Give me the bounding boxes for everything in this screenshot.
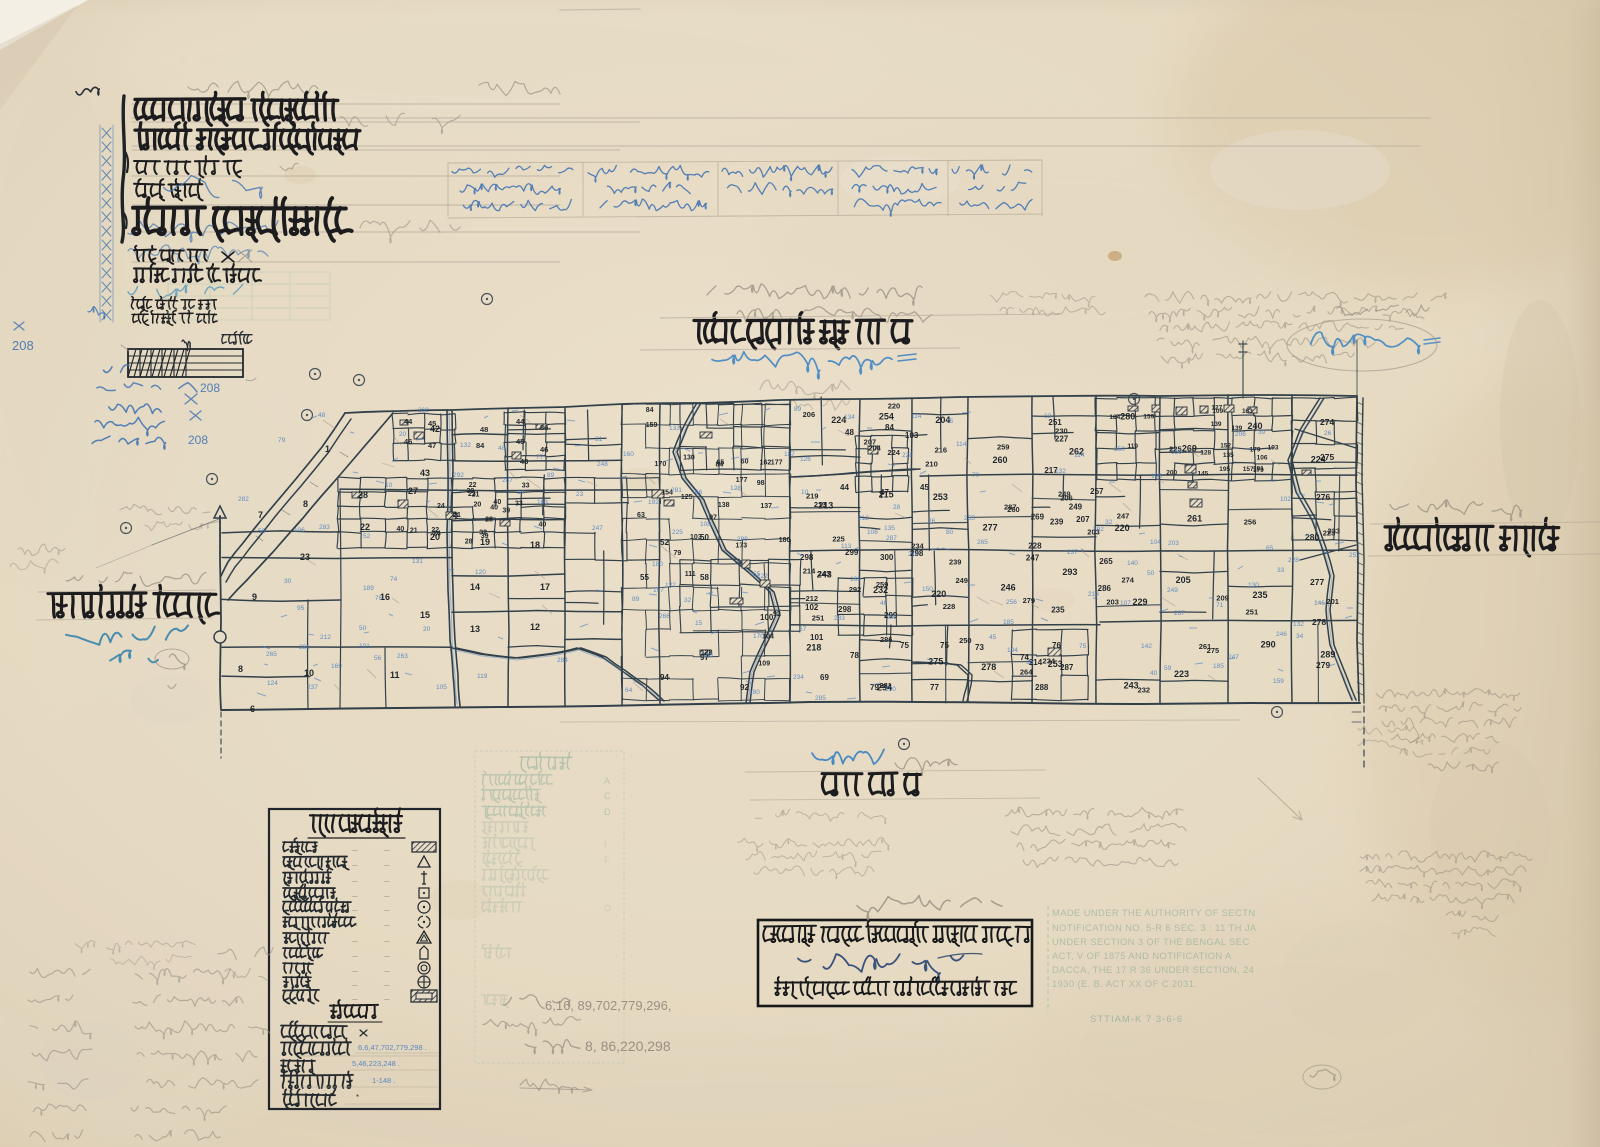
svg-text:292: 292 xyxy=(453,472,464,479)
svg-text:D: D xyxy=(604,807,611,817)
svg-text:229: 229 xyxy=(1132,597,1147,607)
svg-text:274: 274 xyxy=(1320,417,1334,427)
svg-text:103: 103 xyxy=(905,431,919,440)
svg-text:246: 246 xyxy=(1276,631,1287,638)
svg-text:235: 235 xyxy=(1051,606,1065,615)
svg-text:1930 (E. B. ACT XX OF C 2: 1930 (E. B. ACT XX OF C 2031. xyxy=(1052,978,1197,989)
svg-text:15: 15 xyxy=(420,610,430,620)
svg-text:89: 89 xyxy=(547,472,555,479)
svg-text:152: 152 xyxy=(886,614,897,621)
svg-text:215: 215 xyxy=(879,489,894,499)
svg-text:265: 265 xyxy=(1099,557,1113,566)
svg-text:278: 278 xyxy=(981,662,996,672)
svg-text:114: 114 xyxy=(911,413,922,420)
svg-text:11: 11 xyxy=(390,670,400,680)
svg-text:259: 259 xyxy=(997,442,1010,451)
svg-text:228: 228 xyxy=(902,452,913,459)
svg-text:59: 59 xyxy=(1164,665,1172,672)
svg-text:249: 249 xyxy=(1167,587,1178,594)
svg-text:20: 20 xyxy=(399,431,407,438)
svg-text:113: 113 xyxy=(841,543,852,550)
svg-text:21: 21 xyxy=(453,512,461,519)
svg-text:131: 131 xyxy=(412,558,423,565)
svg-text:...: ... xyxy=(352,861,358,868)
svg-text:...: ... xyxy=(384,921,390,928)
svg-text:249: 249 xyxy=(955,576,968,585)
svg-text:8: 8 xyxy=(238,664,243,674)
svg-text:286: 286 xyxy=(1098,584,1112,593)
svg-text:205: 205 xyxy=(1176,575,1191,585)
svg-text:289: 289 xyxy=(1320,650,1335,660)
svg-text:169: 169 xyxy=(850,576,861,583)
svg-text:203: 203 xyxy=(1168,540,1179,547)
svg-text:266: 266 xyxy=(659,613,670,620)
svg-text:...: ... xyxy=(384,861,390,868)
svg-text:190: 190 xyxy=(885,686,896,693)
svg-text:284: 284 xyxy=(557,657,568,664)
svg-text:33: 33 xyxy=(1277,567,1285,574)
svg-text:33: 33 xyxy=(515,501,523,508)
svg-text:102: 102 xyxy=(1280,496,1291,503)
svg-text:200: 200 xyxy=(1166,469,1177,476)
svg-text:280: 280 xyxy=(1120,412,1135,422)
svg-text:160: 160 xyxy=(623,451,634,458)
svg-text:247: 247 xyxy=(1026,554,1040,563)
svg-text:292: 292 xyxy=(849,585,862,594)
svg-text:17: 17 xyxy=(540,582,550,592)
svg-text:...: ... xyxy=(352,981,358,988)
svg-text:250: 250 xyxy=(1114,446,1125,453)
svg-text:195: 195 xyxy=(1151,473,1162,480)
svg-text:162: 162 xyxy=(760,459,772,466)
svg-text:89: 89 xyxy=(632,596,640,603)
svg-text:257: 257 xyxy=(1090,487,1104,496)
svg-text:102: 102 xyxy=(805,603,819,612)
svg-text:...: ... xyxy=(352,967,358,974)
svg-text:228: 228 xyxy=(943,602,956,611)
svg-text:...: ... xyxy=(384,877,390,884)
svg-text:96: 96 xyxy=(1026,659,1034,666)
svg-text:223: 223 xyxy=(1323,529,1336,538)
svg-text:56: 56 xyxy=(258,528,266,535)
svg-text:63: 63 xyxy=(637,512,645,519)
svg-text:45: 45 xyxy=(989,634,997,641)
svg-text:92: 92 xyxy=(773,611,781,618)
svg-text:247: 247 xyxy=(1117,511,1130,520)
svg-text:...: ... xyxy=(352,906,358,913)
svg-text:169: 169 xyxy=(331,663,342,670)
svg-text:132: 132 xyxy=(460,442,471,449)
svg-text:234: 234 xyxy=(911,542,924,551)
svg-text:298: 298 xyxy=(800,553,814,562)
svg-text:120: 120 xyxy=(475,569,486,576)
svg-text:14: 14 xyxy=(470,582,480,592)
svg-text:220: 220 xyxy=(888,401,901,410)
svg-text:223: 223 xyxy=(1174,669,1189,679)
svg-text:NOTIFICATION NO. 5-R 6 SEC.: NOTIFICATION NO. 5-R 6 SEC. 3 : 11 TH JA xyxy=(1052,922,1257,933)
svg-text:27: 27 xyxy=(408,486,418,496)
svg-text:48: 48 xyxy=(498,445,506,452)
svg-text:12: 12 xyxy=(530,622,540,632)
svg-text:288: 288 xyxy=(1035,683,1049,692)
svg-text:...: ... xyxy=(352,952,358,959)
svg-text:58: 58 xyxy=(700,573,709,582)
svg-text:109: 109 xyxy=(758,661,770,668)
svg-text:44: 44 xyxy=(404,417,413,426)
svg-text:293: 293 xyxy=(1062,567,1077,577)
svg-text:23: 23 xyxy=(576,491,584,498)
svg-text:114: 114 xyxy=(1074,452,1085,459)
svg-text:265: 265 xyxy=(266,651,277,658)
svg-text:274: 274 xyxy=(1121,575,1134,584)
svg-text:185: 185 xyxy=(1003,619,1014,626)
svg-text:212: 212 xyxy=(320,634,331,641)
svg-text:286: 286 xyxy=(299,644,310,651)
svg-text:212: 212 xyxy=(858,515,869,522)
svg-text:...: ... xyxy=(384,967,390,974)
svg-text:275: 275 xyxy=(1320,452,1334,462)
svg-text:1-148 .: 1-148 . xyxy=(372,1076,395,1085)
svg-text:283: 283 xyxy=(834,615,845,622)
svg-text:A: A xyxy=(604,776,610,786)
svg-text:298: 298 xyxy=(838,605,852,614)
svg-text:...: ... xyxy=(352,892,358,899)
svg-text:208: 208 xyxy=(188,433,208,447)
svg-text:56: 56 xyxy=(374,655,382,662)
svg-text:I: I xyxy=(604,839,607,849)
svg-text:249: 249 xyxy=(1058,490,1071,499)
svg-text:206: 206 xyxy=(1235,431,1246,438)
svg-text:234: 234 xyxy=(793,674,804,681)
svg-text:269: 269 xyxy=(1182,443,1197,453)
svg-text:134: 134 xyxy=(844,414,855,421)
svg-text:101: 101 xyxy=(359,643,370,650)
svg-text:177: 177 xyxy=(736,477,748,484)
svg-text:300: 300 xyxy=(880,553,894,562)
svg-text:...: ... xyxy=(352,937,358,944)
svg-text:181: 181 xyxy=(1253,465,1264,472)
svg-text:8: 8 xyxy=(303,499,308,509)
svg-text:28: 28 xyxy=(893,504,901,511)
svg-text:46: 46 xyxy=(404,437,412,446)
svg-text:279: 279 xyxy=(1023,596,1036,605)
svg-text:126: 126 xyxy=(800,456,811,463)
svg-text:ACT, V OF 1875 AND NOTIFICAT: ACT, V OF 1875 AND NOTIFICATION A xyxy=(1052,950,1232,961)
svg-text:...: ... xyxy=(384,892,390,899)
svg-text:130: 130 xyxy=(1248,582,1259,589)
svg-text:262: 262 xyxy=(418,407,429,414)
svg-text:237: 237 xyxy=(1067,549,1078,556)
svg-text:235: 235 xyxy=(1253,590,1268,600)
svg-text:256: 256 xyxy=(1244,517,1257,526)
svg-text:276: 276 xyxy=(1316,492,1330,502)
svg-text:C: C xyxy=(604,791,611,801)
svg-text:263: 263 xyxy=(397,653,408,660)
svg-text:212: 212 xyxy=(806,594,819,603)
svg-text:152: 152 xyxy=(1220,442,1231,449)
svg-text:163: 163 xyxy=(537,499,548,506)
svg-text:150: 150 xyxy=(922,586,933,593)
svg-text:8, 86,220,298: 8, 86,220,298 xyxy=(585,1038,671,1054)
svg-text:75: 75 xyxy=(946,418,954,425)
svg-text:40: 40 xyxy=(1150,670,1158,677)
svg-text:247: 247 xyxy=(1228,654,1239,661)
svg-text:...: ... xyxy=(352,921,358,928)
svg-text:201: 201 xyxy=(1326,597,1339,606)
svg-text:210: 210 xyxy=(925,459,938,468)
svg-text:197: 197 xyxy=(653,587,664,594)
svg-text:104: 104 xyxy=(1150,539,1161,546)
svg-text:32: 32 xyxy=(684,597,692,604)
svg-text:280: 280 xyxy=(1305,532,1319,542)
svg-text:77: 77 xyxy=(930,683,939,692)
svg-text:287: 287 xyxy=(1004,503,1017,512)
svg-text:239: 239 xyxy=(949,557,962,566)
svg-text:98: 98 xyxy=(757,480,765,487)
svg-text:159: 159 xyxy=(1171,449,1182,456)
svg-text:125: 125 xyxy=(681,494,693,501)
svg-text:140: 140 xyxy=(1127,560,1138,567)
svg-text:111: 111 xyxy=(685,571,696,578)
svg-text:22: 22 xyxy=(360,522,370,532)
svg-text:107: 107 xyxy=(1120,600,1131,607)
svg-text:179: 179 xyxy=(1250,447,1261,454)
svg-text:195: 195 xyxy=(1219,466,1230,473)
svg-text:208: 208 xyxy=(200,381,220,395)
svg-text:6: 6 xyxy=(250,704,255,714)
svg-text:45: 45 xyxy=(428,419,436,428)
svg-text:22: 22 xyxy=(431,527,439,534)
svg-text:21: 21 xyxy=(410,527,418,534)
svg-text:78: 78 xyxy=(850,651,859,660)
svg-text:47: 47 xyxy=(428,441,436,450)
svg-text:40: 40 xyxy=(397,526,405,533)
svg-text:249: 249 xyxy=(1069,503,1083,512)
svg-text:206: 206 xyxy=(803,410,816,419)
svg-text:50: 50 xyxy=(359,625,367,632)
svg-text:...: ... xyxy=(384,952,390,959)
svg-text:213: 213 xyxy=(1088,591,1099,598)
svg-text:228: 228 xyxy=(1028,541,1042,550)
svg-text:106: 106 xyxy=(1257,455,1268,462)
svg-text:281: 281 xyxy=(671,487,682,494)
svg-text:228: 228 xyxy=(1288,557,1299,564)
svg-text:114: 114 xyxy=(956,441,967,448)
svg-text:225: 225 xyxy=(672,529,683,536)
svg-text:177: 177 xyxy=(771,459,783,466)
svg-text:45: 45 xyxy=(920,483,929,492)
svg-text:133: 133 xyxy=(669,425,680,432)
svg-text:255: 255 xyxy=(964,515,975,522)
svg-text:1: 1 xyxy=(325,444,330,454)
svg-text:119: 119 xyxy=(1128,443,1139,450)
svg-text:239: 239 xyxy=(1050,518,1064,527)
svg-text:14: 14 xyxy=(517,489,525,496)
svg-text:287: 287 xyxy=(502,477,513,484)
svg-text:20: 20 xyxy=(423,626,431,633)
svg-text:71: 71 xyxy=(1216,602,1224,609)
svg-text:...: ... xyxy=(352,877,358,884)
svg-text:67: 67 xyxy=(799,626,807,633)
svg-text:277: 277 xyxy=(1310,577,1324,587)
svg-text:52: 52 xyxy=(363,533,371,540)
svg-text:20: 20 xyxy=(474,502,482,509)
svg-text:48: 48 xyxy=(845,428,854,437)
svg-text:34: 34 xyxy=(1296,633,1304,640)
svg-text:299: 299 xyxy=(737,536,748,543)
svg-text:213: 213 xyxy=(814,500,827,509)
svg-text:28: 28 xyxy=(465,538,473,545)
svg-text:84: 84 xyxy=(885,423,894,432)
svg-text:208: 208 xyxy=(12,338,34,353)
svg-text:65: 65 xyxy=(1266,545,1274,552)
svg-text:139: 139 xyxy=(1211,421,1222,428)
svg-text:46: 46 xyxy=(880,600,888,607)
svg-text:6,16, 89,702,779,296,: 6,16, 89,702,779,296, xyxy=(545,998,672,1013)
svg-text:105: 105 xyxy=(436,684,447,691)
svg-text:...: ... xyxy=(384,846,390,853)
svg-text:283: 283 xyxy=(319,524,330,531)
svg-text:220: 220 xyxy=(931,589,946,599)
svg-text:26: 26 xyxy=(928,518,936,525)
svg-text:30: 30 xyxy=(284,578,292,585)
svg-text:251: 251 xyxy=(1246,608,1259,617)
svg-text:44: 44 xyxy=(516,417,525,426)
svg-text:28: 28 xyxy=(485,517,493,524)
svg-text:95: 95 xyxy=(297,605,305,612)
svg-text:234: 234 xyxy=(1043,657,1056,666)
svg-text:264: 264 xyxy=(1020,667,1033,676)
svg-text:261: 261 xyxy=(1187,514,1202,524)
svg-text:260: 260 xyxy=(993,455,1008,465)
svg-text:124: 124 xyxy=(267,680,278,687)
svg-text:247: 247 xyxy=(592,525,603,532)
svg-text:9: 9 xyxy=(252,592,257,602)
svg-text:32: 32 xyxy=(1105,519,1113,526)
svg-text:145: 145 xyxy=(1197,470,1208,477)
svg-text:265: 265 xyxy=(977,539,988,546)
svg-text:28: 28 xyxy=(358,490,368,500)
svg-text:79: 79 xyxy=(673,550,681,557)
svg-text:70: 70 xyxy=(972,472,980,479)
svg-text:203: 203 xyxy=(1106,597,1119,606)
svg-text:43: 43 xyxy=(420,468,430,478)
svg-text:75: 75 xyxy=(940,641,949,650)
svg-text:48: 48 xyxy=(520,457,528,466)
svg-text:214: 214 xyxy=(803,567,816,576)
svg-text:6,6,47,702,779,298 .: 6,6,47,702,779,298 . xyxy=(358,1043,427,1052)
svg-text:60: 60 xyxy=(741,459,749,466)
svg-text:279: 279 xyxy=(1316,660,1330,670)
svg-text:32: 32 xyxy=(479,530,487,537)
svg-text:55: 55 xyxy=(753,571,761,578)
svg-text:101: 101 xyxy=(810,633,824,642)
svg-text:135: 135 xyxy=(884,525,895,532)
svg-text:106: 106 xyxy=(294,527,305,534)
svg-text:243: 243 xyxy=(818,569,831,578)
svg-text:80: 80 xyxy=(946,529,954,536)
svg-text:66: 66 xyxy=(695,489,703,496)
svg-text:50: 50 xyxy=(700,533,709,542)
svg-text:26: 26 xyxy=(1324,430,1332,437)
svg-text:180: 180 xyxy=(749,689,760,696)
svg-text:...: ... xyxy=(384,937,390,944)
svg-text:170: 170 xyxy=(655,461,667,468)
svg-text:39: 39 xyxy=(1258,429,1266,436)
svg-text:7: 7 xyxy=(258,510,263,520)
svg-text:224: 224 xyxy=(887,448,900,457)
svg-text:76: 76 xyxy=(1052,641,1061,650)
svg-text:193: 193 xyxy=(1268,445,1279,452)
svg-text:252: 252 xyxy=(1349,552,1360,559)
svg-text:187: 187 xyxy=(784,451,795,458)
svg-text:18: 18 xyxy=(530,540,540,550)
svg-text:137: 137 xyxy=(760,503,772,510)
svg-text:64: 64 xyxy=(625,687,633,694)
svg-text:76: 76 xyxy=(375,595,383,602)
svg-text:192: 192 xyxy=(648,499,659,506)
svg-text:243: 243 xyxy=(1124,680,1139,690)
svg-text:163: 163 xyxy=(1242,408,1253,415)
svg-text:290: 290 xyxy=(1261,640,1276,650)
svg-text:108: 108 xyxy=(700,521,711,528)
svg-text:84: 84 xyxy=(646,407,654,414)
svg-text:10: 10 xyxy=(801,489,809,496)
svg-text:DACCA, THE 17 R 36 UNDER SEC: DACCA, THE 17 R 36 UNDER SECTION, 24 xyxy=(1052,964,1254,975)
svg-text:75: 75 xyxy=(1079,643,1087,650)
svg-text:232: 232 xyxy=(1138,686,1151,695)
svg-text:132: 132 xyxy=(1293,621,1304,628)
svg-text:104: 104 xyxy=(762,634,774,641)
svg-text:UNDER SECTION 3 OF THE BENGAL: UNDER SECTION 3 OF THE BENGAL SEC xyxy=(1052,936,1250,947)
svg-text:237: 237 xyxy=(307,684,318,691)
svg-text:39: 39 xyxy=(502,508,510,515)
svg-text:48: 48 xyxy=(318,412,326,419)
svg-text:44: 44 xyxy=(840,483,849,492)
svg-text:106: 106 xyxy=(867,529,878,536)
svg-text:50: 50 xyxy=(1147,570,1155,577)
svg-text:259: 259 xyxy=(876,580,889,589)
svg-text:287: 287 xyxy=(886,535,897,542)
svg-text:46: 46 xyxy=(540,445,548,454)
svg-text:132: 132 xyxy=(1055,468,1066,475)
svg-text:10: 10 xyxy=(304,668,314,678)
svg-text:185: 185 xyxy=(1213,663,1224,670)
svg-text:89: 89 xyxy=(794,406,802,413)
svg-text:84: 84 xyxy=(476,441,485,450)
svg-text:216: 216 xyxy=(935,445,948,454)
svg-text:218: 218 xyxy=(806,642,821,652)
svg-text:...: ... xyxy=(384,906,390,913)
svg-text:109: 109 xyxy=(1212,408,1223,415)
svg-text:...: ... xyxy=(352,846,358,853)
svg-text:15: 15 xyxy=(695,620,703,627)
svg-text:5,46,223,248 .: 5,46,223,248 . xyxy=(352,1059,400,1068)
svg-text:211: 211 xyxy=(908,551,919,558)
svg-text:256: 256 xyxy=(1006,599,1017,606)
svg-text:77: 77 xyxy=(536,454,544,461)
svg-text:194: 194 xyxy=(1007,647,1018,654)
svg-text:...: ... xyxy=(384,981,390,988)
svg-text:122: 122 xyxy=(665,582,676,589)
svg-text:189: 189 xyxy=(363,585,374,592)
svg-text:84: 84 xyxy=(715,462,723,469)
svg-text:55: 55 xyxy=(640,573,649,582)
svg-text:MADE UNDER THE AUTHORITY OF SE: MADE UNDER THE AUTHORITY OF SECTN xyxy=(1052,907,1256,918)
svg-text:79: 79 xyxy=(278,437,286,444)
svg-text:142: 142 xyxy=(1141,643,1152,650)
svg-text:159: 159 xyxy=(1273,678,1284,685)
